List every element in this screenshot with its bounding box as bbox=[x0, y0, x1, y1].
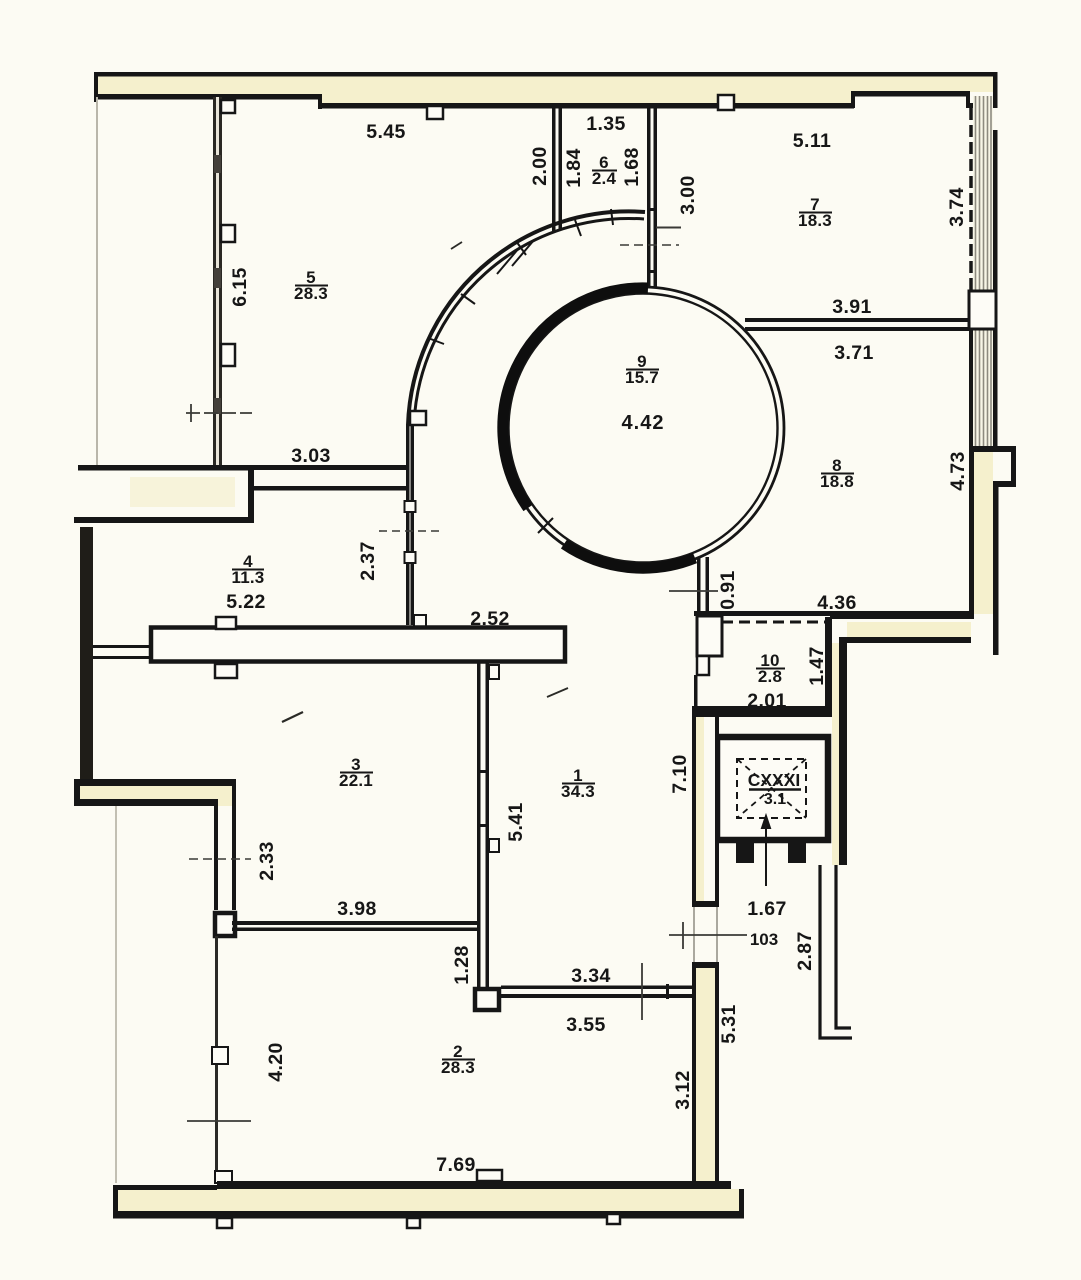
svg-text:2.87: 2.87 bbox=[794, 931, 816, 971]
svg-text:3.34: 3.34 bbox=[571, 965, 611, 987]
svg-text:7.10: 7.10 bbox=[669, 754, 691, 794]
svg-text:3.55: 3.55 bbox=[566, 1014, 606, 1036]
svg-text:3.71: 3.71 bbox=[834, 342, 874, 364]
svg-text:2.37: 2.37 bbox=[357, 541, 379, 581]
svg-text:1.84: 1.84 bbox=[563, 148, 585, 188]
svg-text:4.36: 4.36 bbox=[817, 592, 857, 614]
svg-text:2.4: 2.4 bbox=[592, 169, 617, 188]
svg-text:3.91: 3.91 bbox=[832, 296, 872, 318]
svg-text:15.7: 15.7 bbox=[625, 368, 659, 387]
svg-text:3.1: 3.1 bbox=[764, 791, 786, 808]
svg-text:3.74: 3.74 bbox=[946, 187, 968, 227]
svg-text:28.3: 28.3 bbox=[294, 284, 328, 303]
svg-text:3.12: 3.12 bbox=[672, 1070, 694, 1110]
svg-text:34.3: 34.3 bbox=[561, 782, 595, 801]
svg-text:2.00: 2.00 bbox=[529, 146, 551, 186]
svg-text:11.3: 11.3 bbox=[232, 568, 265, 587]
svg-text:3.98: 3.98 bbox=[337, 898, 377, 920]
svg-text:5.41: 5.41 bbox=[505, 802, 527, 842]
svg-text:6.15: 6.15 bbox=[229, 267, 251, 307]
svg-text:3.03: 3.03 bbox=[291, 445, 331, 467]
svg-text:0.91: 0.91 bbox=[717, 570, 739, 610]
svg-text:1.68: 1.68 bbox=[621, 147, 643, 187]
svg-text:5.31: 5.31 bbox=[718, 1004, 740, 1044]
svg-text:7.69: 7.69 bbox=[436, 1154, 476, 1176]
svg-text:18.3: 18.3 bbox=[798, 211, 832, 230]
svg-text:22.1: 22.1 bbox=[339, 771, 373, 790]
svg-text:1.47: 1.47 bbox=[806, 646, 828, 686]
svg-text:4.73: 4.73 bbox=[947, 451, 969, 491]
svg-text:28.3: 28.3 bbox=[441, 1058, 475, 1077]
svg-text:5.22: 5.22 bbox=[226, 591, 266, 613]
svg-text:3.00: 3.00 bbox=[677, 175, 699, 215]
svg-text:4.42: 4.42 bbox=[622, 412, 665, 434]
svg-text:2.33: 2.33 bbox=[256, 841, 278, 881]
svg-text:CXXXI: CXXXI bbox=[748, 770, 801, 790]
svg-text:5.45: 5.45 bbox=[366, 121, 406, 143]
svg-text:1.67: 1.67 bbox=[747, 898, 787, 920]
svg-text:4.20: 4.20 bbox=[265, 1042, 287, 1082]
svg-text:1.28: 1.28 bbox=[451, 945, 473, 985]
svg-text:103: 103 bbox=[750, 930, 778, 949]
svg-text:2.8: 2.8 bbox=[758, 667, 782, 686]
svg-text:2.52: 2.52 bbox=[470, 608, 510, 630]
svg-text:18.8: 18.8 bbox=[820, 472, 854, 491]
svg-text:2.01: 2.01 bbox=[747, 690, 787, 712]
svg-text:1.35: 1.35 bbox=[586, 113, 626, 135]
svg-text:5.11: 5.11 bbox=[793, 130, 831, 152]
